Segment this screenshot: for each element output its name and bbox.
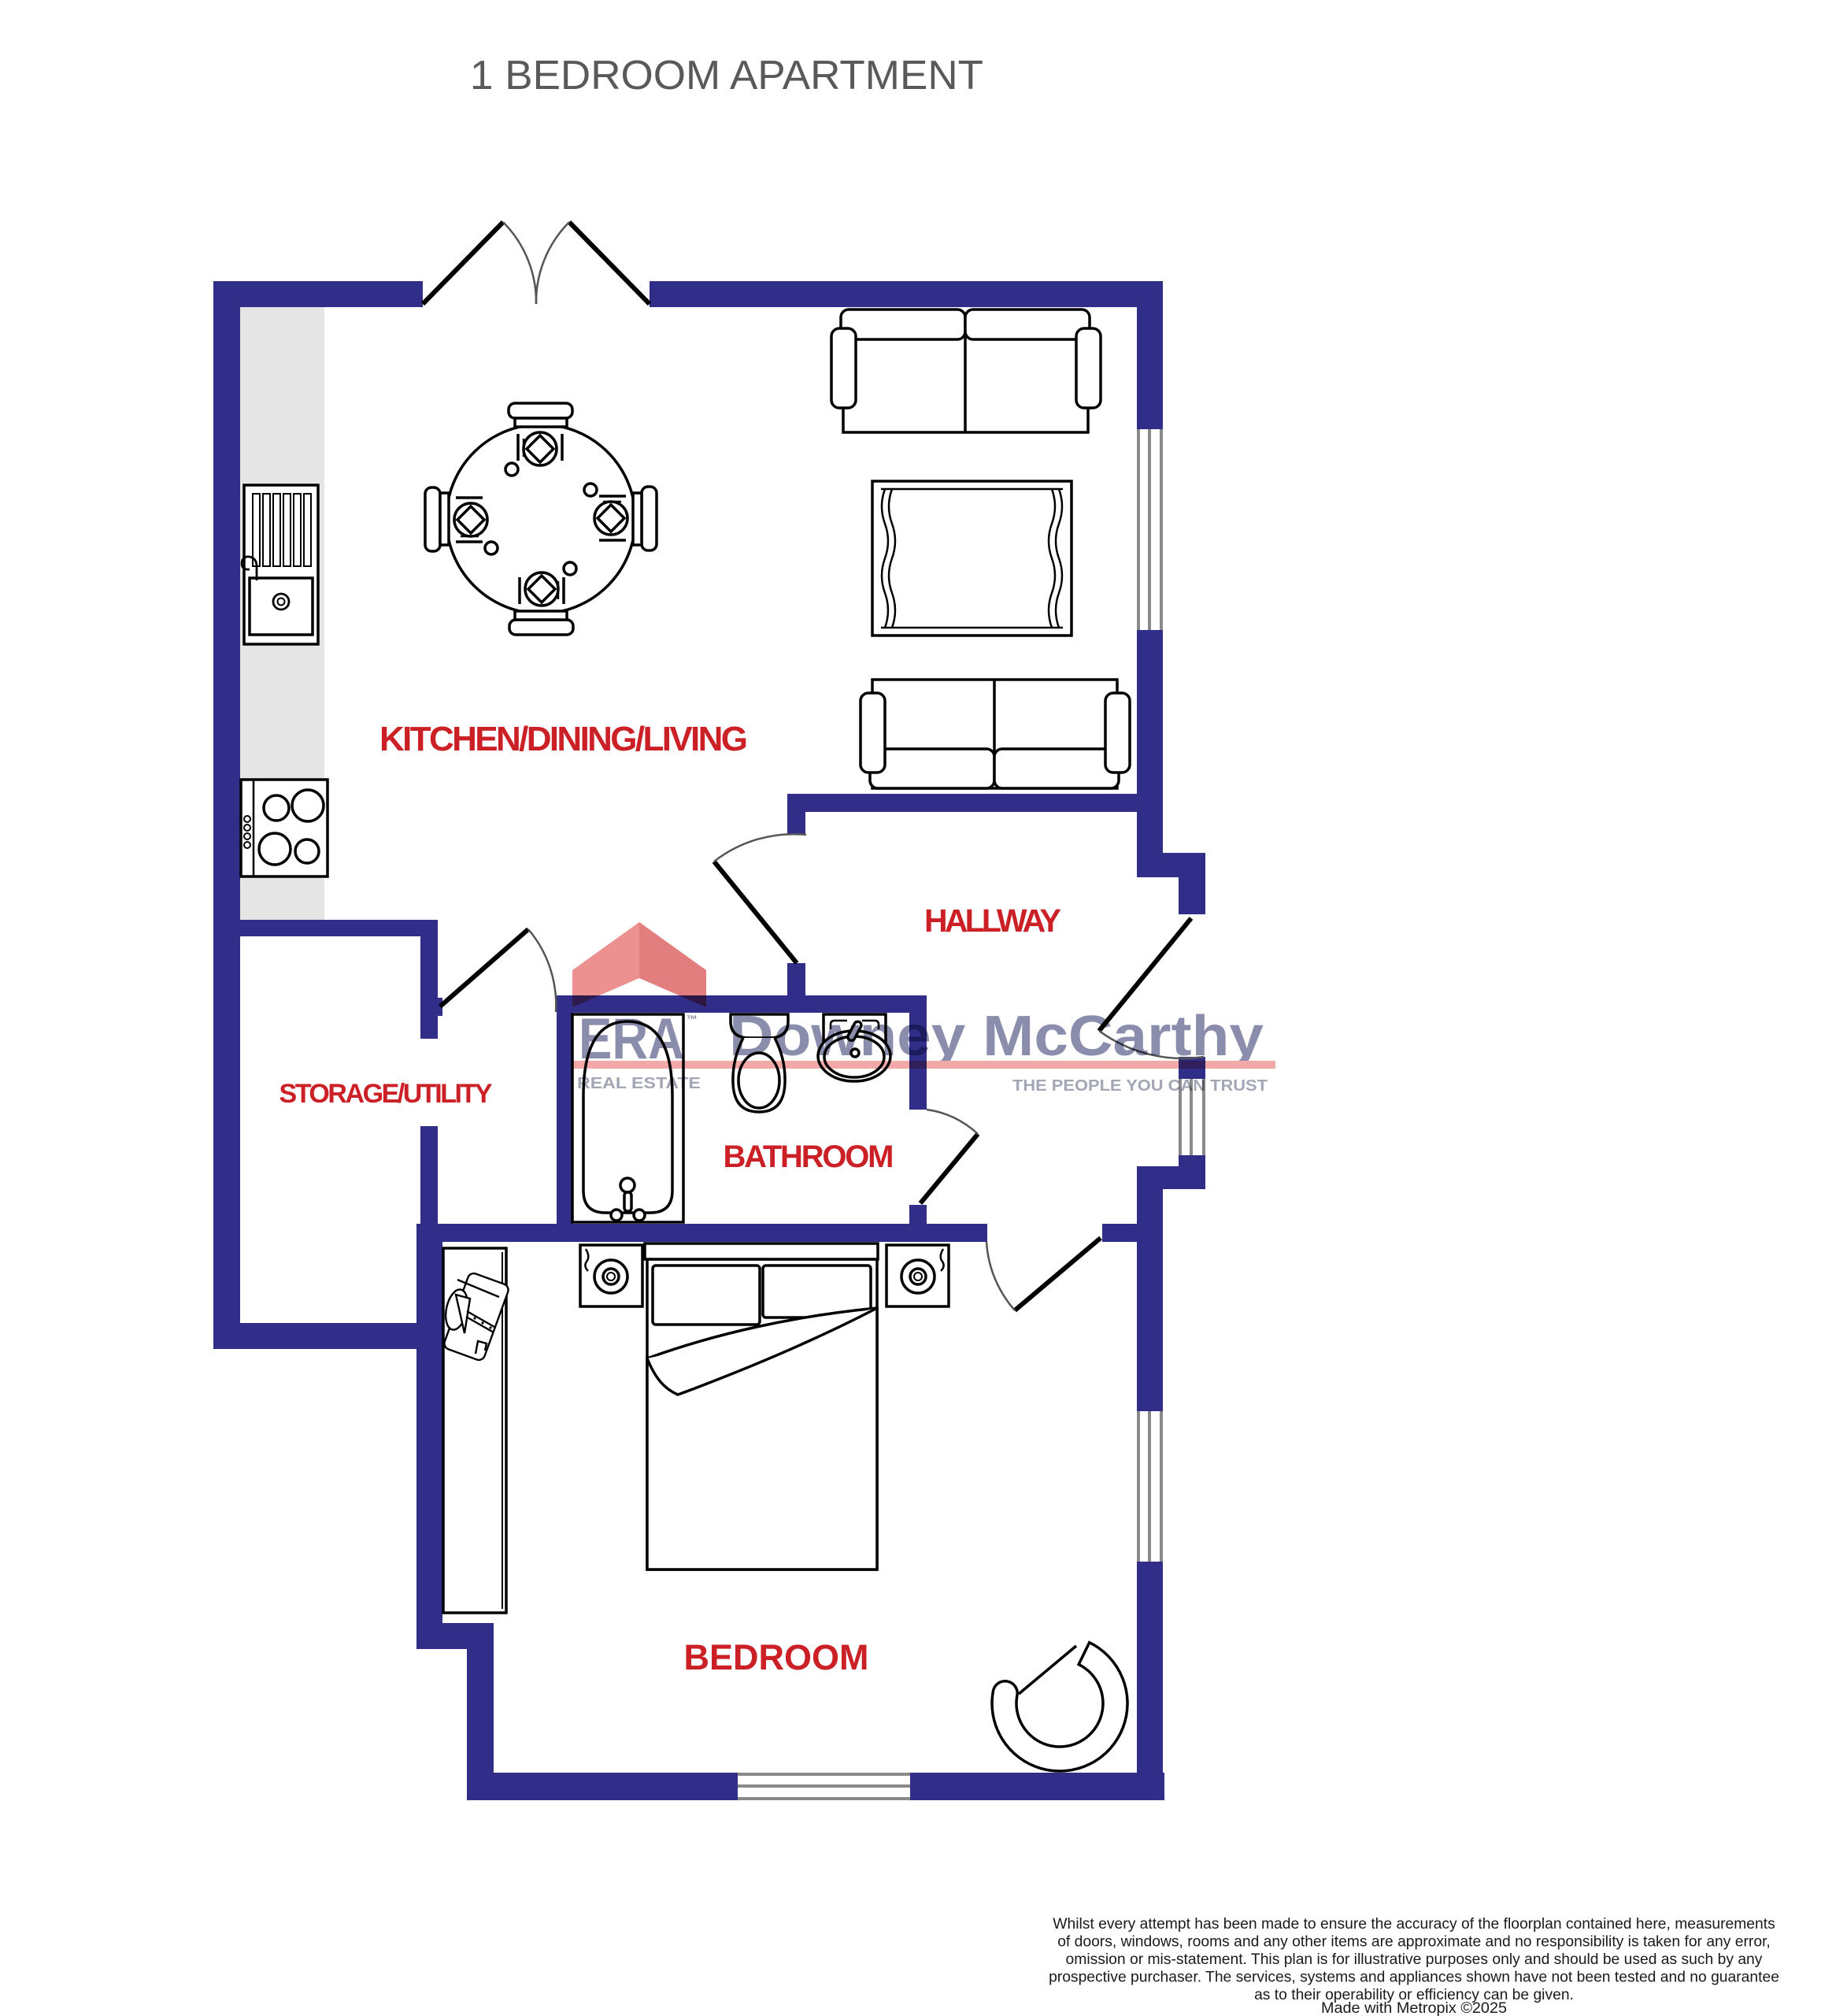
svg-text:REAL ESTATE: REAL ESTATE <box>577 1075 701 1092</box>
svg-text:Whilst every attempt has been: Whilst every attempt has been made to en… <box>1053 1916 1775 1933</box>
svg-text:prospective purchaser. The ser: prospective purchaser. The services, sys… <box>1049 1970 1779 1986</box>
svg-text:HALLWAY: HALLWAY <box>924 902 1061 939</box>
svg-text:Downey McCarthy: Downey McCarthy <box>729 1005 1264 1068</box>
svg-text:1 BEDROOM APARTMENT: 1 BEDROOM APARTMENT <box>470 53 983 98</box>
svg-text:THE PEOPLE YOU CAN TRUST: THE PEOPLE YOU CAN TRUST <box>1012 1077 1268 1095</box>
svg-text:BEDROOM: BEDROOM <box>684 1637 869 1677</box>
svg-text:of doors, windows, rooms and a: of doors, windows, rooms and any other i… <box>1057 1934 1771 1951</box>
svg-text:Made with Metropix ©2025: Made with Metropix ©2025 <box>1321 2000 1507 2016</box>
svg-text:KITCHEN/DINING/LIVING: KITCHEN/DINING/LIVING <box>379 720 748 758</box>
svg-text:STORAGE/UTILITY: STORAGE/UTILITY <box>279 1079 493 1109</box>
svg-text:omission or mis-statement. Thi: omission or mis-statement. This plan is … <box>1066 1951 1763 1968</box>
svg-text:BATHROOM: BATHROOM <box>724 1140 894 1174</box>
svg-text:™: ™ <box>687 1013 698 1025</box>
